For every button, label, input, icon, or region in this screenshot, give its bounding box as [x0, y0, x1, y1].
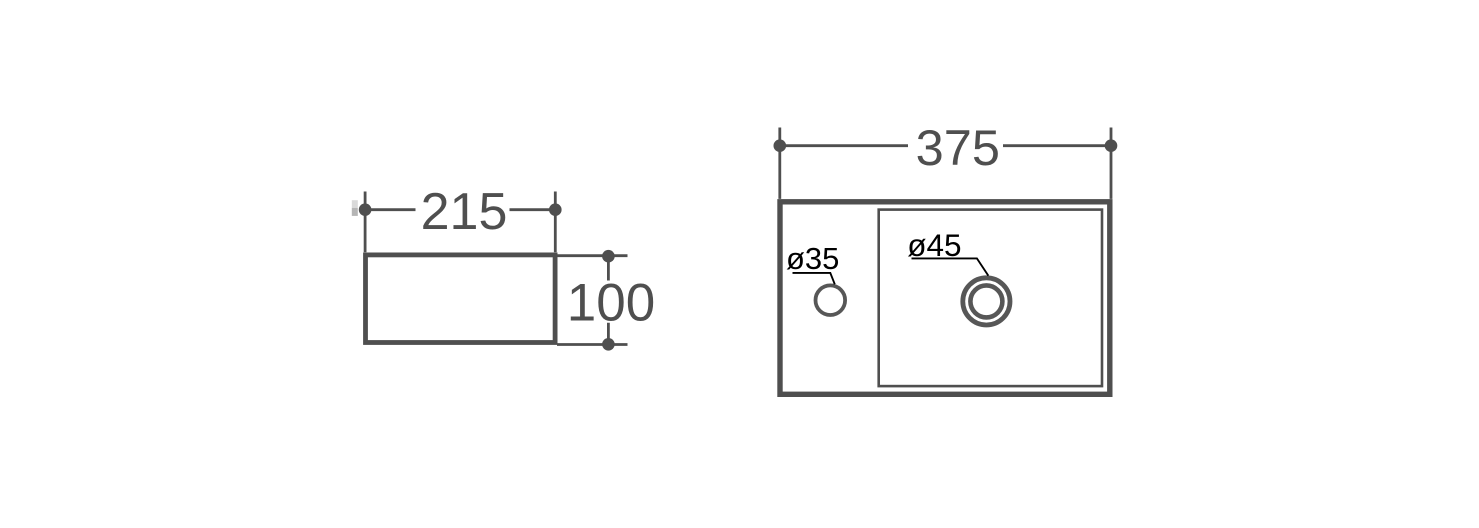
svg-text:375: 375 [916, 119, 1000, 176]
svg-text:100: 100 [567, 274, 655, 333]
svg-text:ø35: ø35 [786, 241, 839, 276]
svg-text:ø45: ø45 [907, 227, 961, 263]
svg-text:215: 215 [421, 183, 508, 241]
